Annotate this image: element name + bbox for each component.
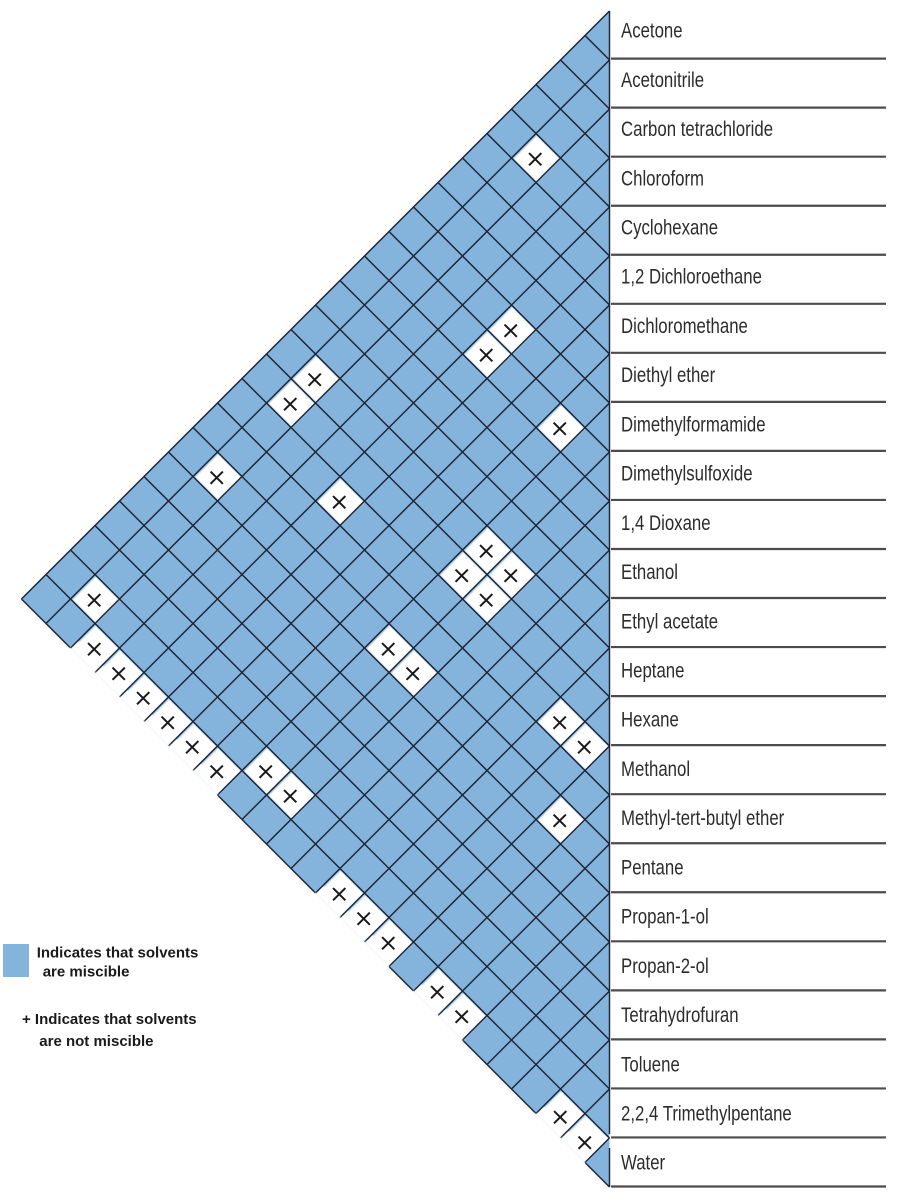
svg-text:Hexane: Hexane bbox=[621, 709, 679, 732]
svg-text:Propan-2-ol: Propan-2-ol bbox=[621, 955, 709, 978]
svg-text:Methanol: Methanol bbox=[621, 758, 690, 781]
svg-text:Methyl-tert-butyl ether: Methyl-tert-butyl ether bbox=[621, 807, 785, 830]
svg-text:Dimethylformamide: Dimethylformamide bbox=[621, 414, 766, 437]
svg-text:Diethyl ether: Diethyl ether bbox=[621, 364, 716, 387]
svg-text:Ethanol: Ethanol bbox=[621, 561, 678, 584]
svg-text:Dimethylsulfoxide: Dimethylsulfoxide bbox=[621, 463, 753, 486]
svg-text:Acetone: Acetone bbox=[621, 20, 683, 43]
svg-text:Heptane: Heptane bbox=[621, 660, 684, 683]
svg-text:Chloroform: Chloroform bbox=[621, 168, 704, 191]
svg-text:Propan-1-ol: Propan-1-ol bbox=[621, 906, 709, 929]
svg-text:+ Indicates that solvents: + Indicates that solvents bbox=[22, 1011, 197, 1028]
svg-text:Dichloromethane: Dichloromethane bbox=[621, 315, 748, 338]
svg-text:Indicates that solvents: Indicates that solvents bbox=[37, 945, 199, 962]
svg-text:Pentane: Pentane bbox=[621, 857, 684, 880]
svg-text:1,4 Dioxane: 1,4 Dioxane bbox=[621, 512, 711, 535]
svg-text:are not miscible: are not miscible bbox=[39, 1033, 153, 1050]
svg-text:Water: Water bbox=[621, 1152, 666, 1175]
svg-text:Toluene: Toluene bbox=[621, 1054, 680, 1077]
svg-text:2,2,4 Trimethylpentane: 2,2,4 Trimethylpentane bbox=[621, 1103, 792, 1126]
svg-text:Cyclohexane: Cyclohexane bbox=[621, 217, 718, 240]
svg-text:Acetonitrile: Acetonitrile bbox=[621, 69, 704, 92]
svg-text:Ethyl acetate: Ethyl acetate bbox=[621, 611, 718, 634]
svg-text:1,2 Dichloroethane: 1,2 Dichloroethane bbox=[621, 266, 762, 289]
svg-text:Carbon tetrachloride: Carbon tetrachloride bbox=[621, 118, 773, 141]
svg-text:Tetrahydrofuran: Tetrahydrofuran bbox=[621, 1004, 739, 1027]
svg-text:are miscible: are miscible bbox=[43, 964, 130, 981]
